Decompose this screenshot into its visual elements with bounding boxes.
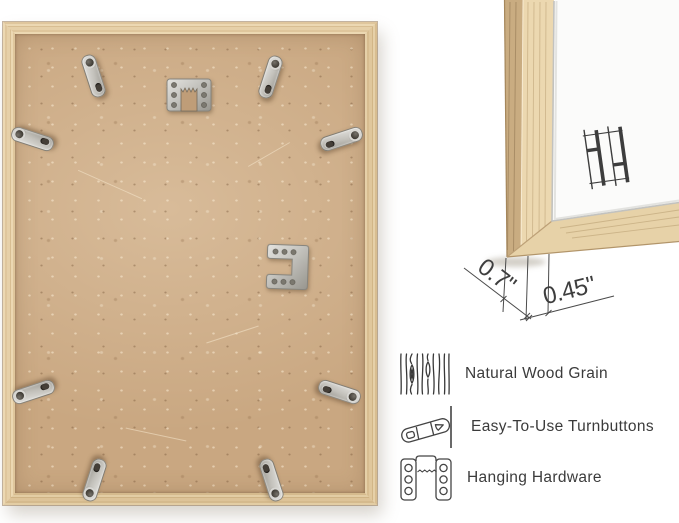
frame-front-face (521, 0, 554, 248)
scratch-mark (206, 326, 259, 344)
frame-edge-left (3, 22, 15, 505)
scratch-mark (78, 170, 142, 199)
feature-row-hardware: Hanging Hardware (398, 453, 602, 503)
feature-label: Natural Wood Grain (465, 365, 608, 383)
frame-edge-right (365, 22, 377, 505)
feature-row-turnbuttons: Easy-To-Use Turnbuttons (398, 403, 654, 451)
hanging-bracket (263, 240, 313, 294)
hanging-hardware-icon (398, 453, 454, 503)
frame-edge-top (3, 22, 377, 34)
scratch-mark (248, 142, 290, 167)
mat-board (552, 0, 679, 221)
turnbutton-icon (398, 403, 458, 451)
product-image-canvas: 0.7" 0.45" Natural Wood (0, 0, 679, 523)
frame-corner-closeup: 0.7" 0.45" (420, 0, 679, 335)
sawtooth-hanger (166, 77, 212, 113)
feature-label: Easy-To-Use Turnbuttons (471, 418, 654, 436)
feature-label: Hanging Hardware (467, 469, 602, 487)
frame-edge-bottom (3, 493, 377, 505)
frame-back-photo (3, 22, 377, 505)
scratch-mark (126, 428, 187, 442)
wood-grain-icon (398, 352, 452, 396)
feature-row-wood-grain: Natural Wood Grain (398, 351, 608, 397)
